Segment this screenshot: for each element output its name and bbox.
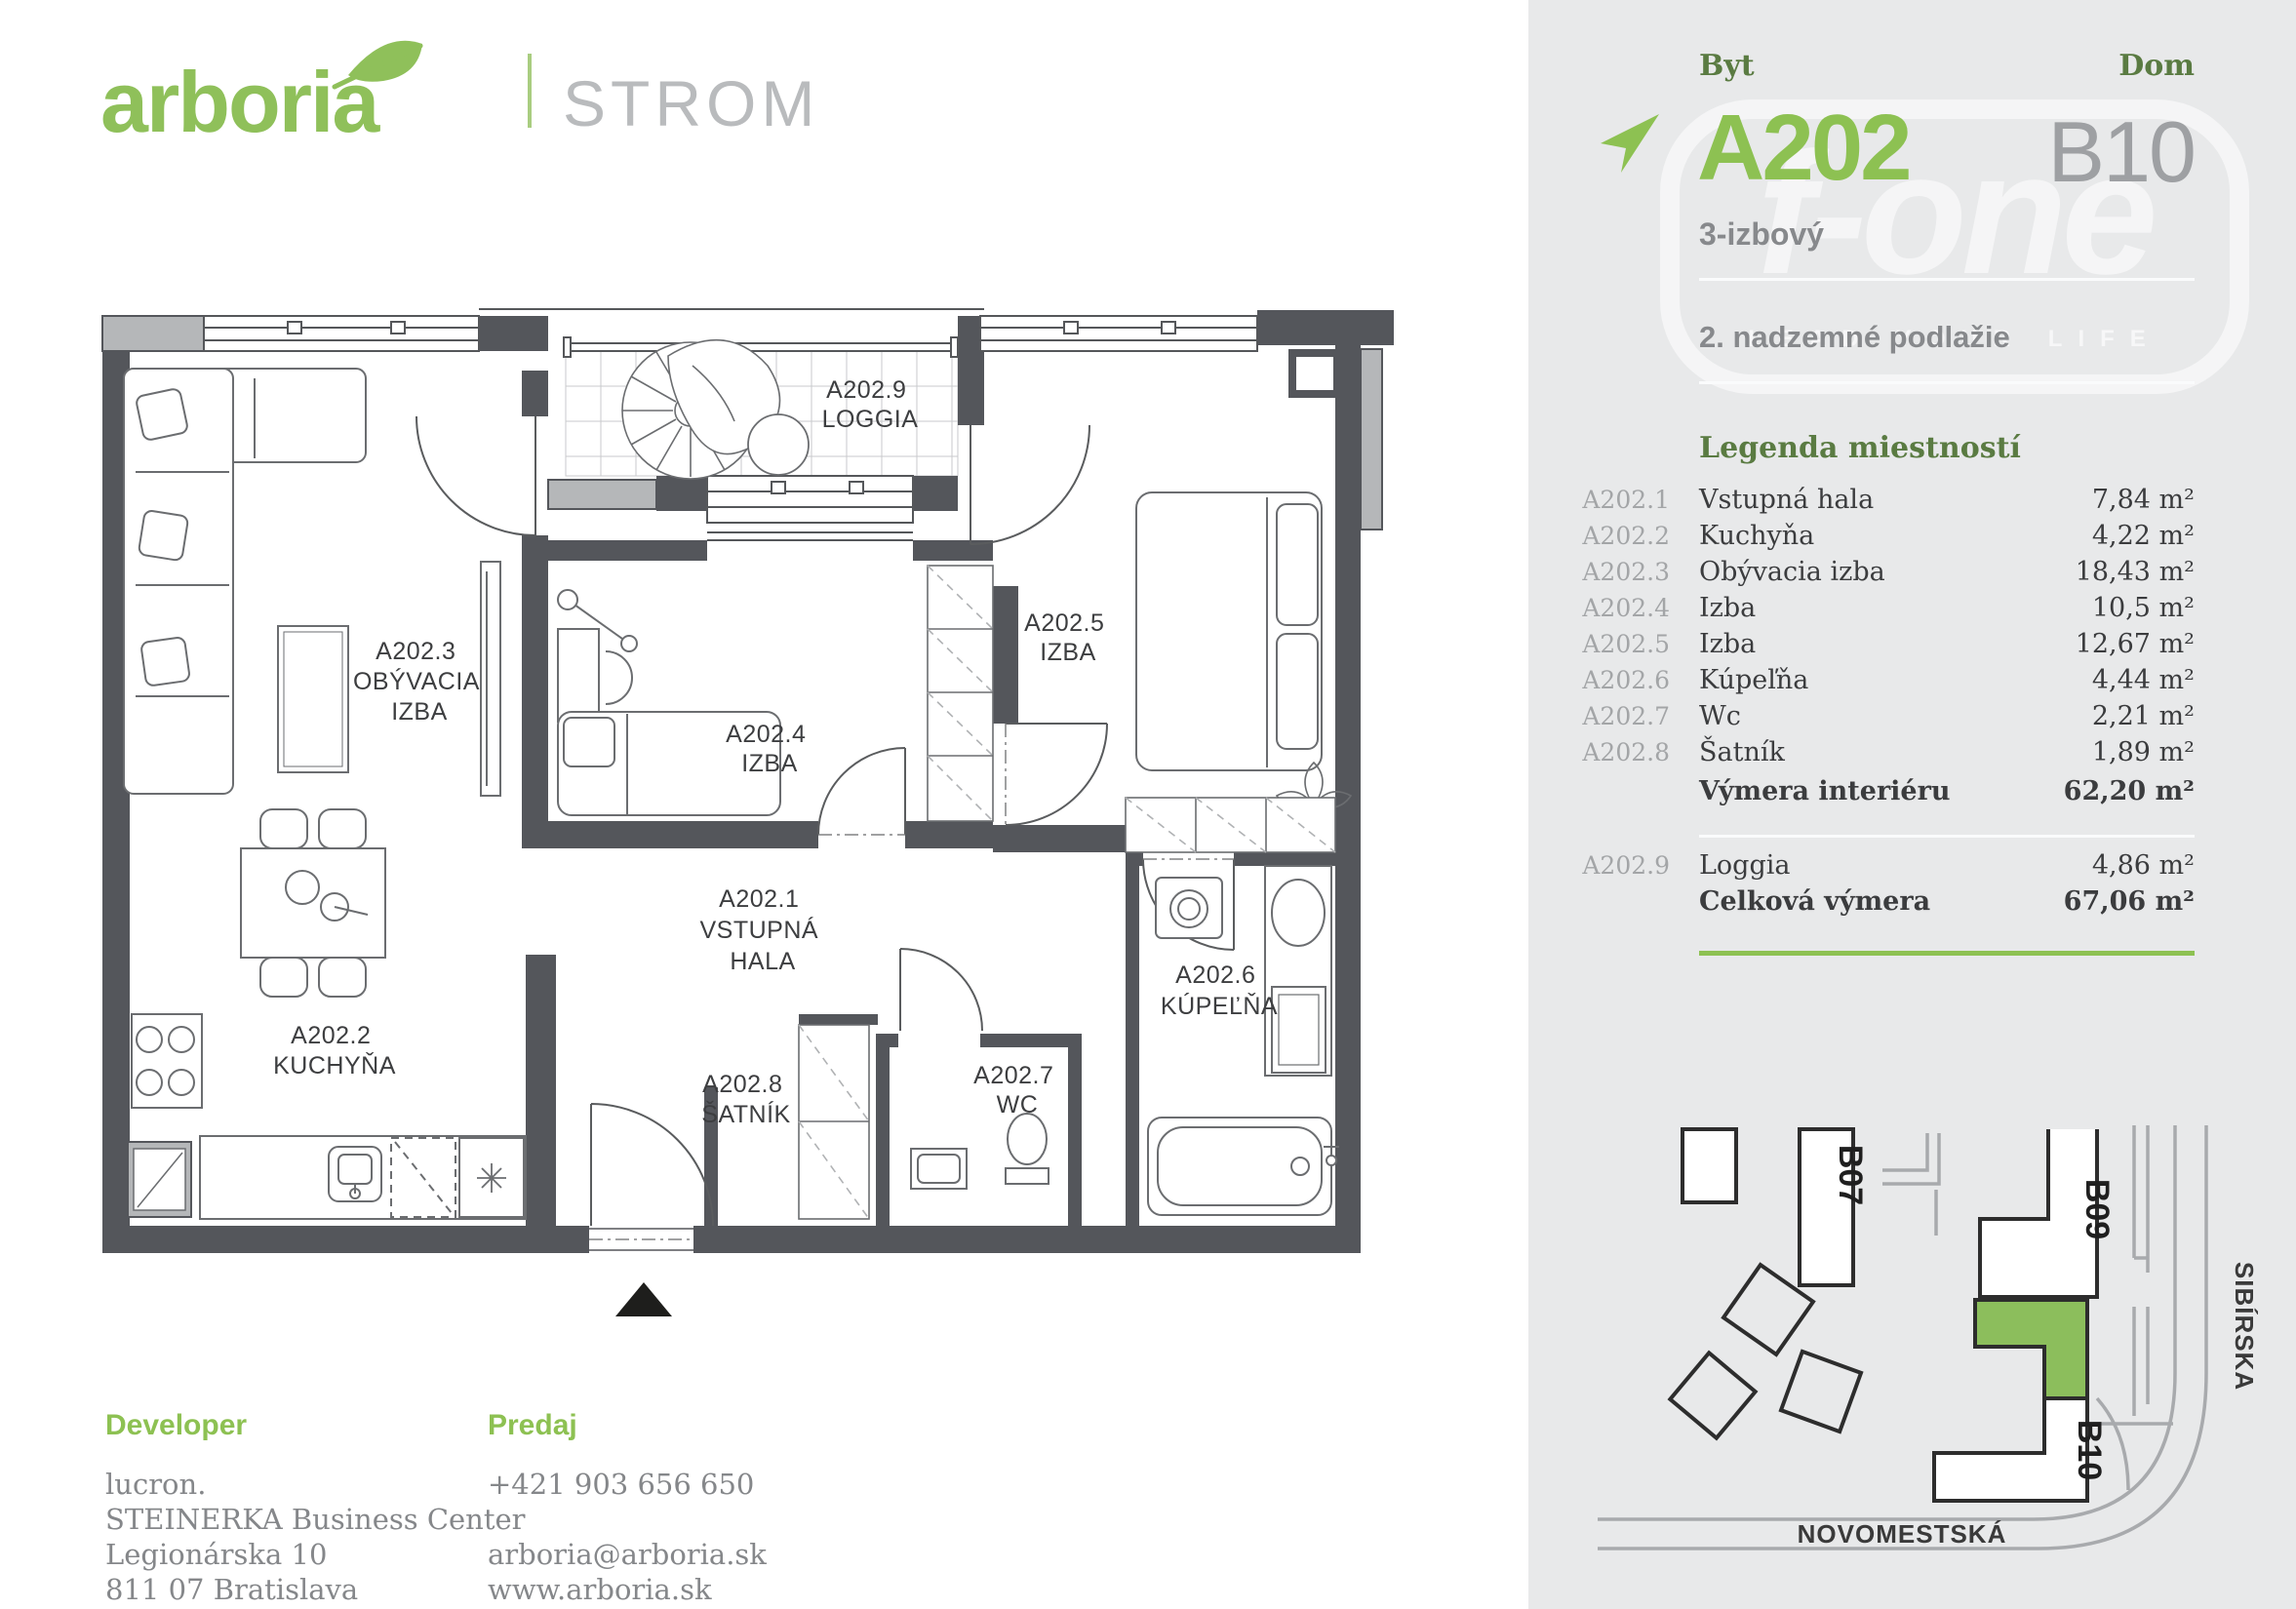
developer-line: STEINERKA Business Center	[105, 1503, 526, 1536]
legend-title: Legenda miestností	[1699, 431, 2021, 465]
vanity	[1272, 987, 1326, 1073]
green-divider	[1699, 951, 2195, 956]
room-area: 2,21 m²	[2092, 701, 2195, 731]
room-code: A202.7	[1567, 702, 1670, 730]
window-izba4-loggia	[707, 476, 913, 540]
cooktop	[132, 1014, 202, 1108]
developer-line: lucron.	[105, 1468, 206, 1501]
dom-label: Dom	[2118, 49, 2195, 83]
bed-double	[1136, 492, 1322, 770]
room-area: 4,86 m²	[2092, 850, 2195, 881]
room-code: A202.8	[1567, 738, 1670, 766]
legend-row: A202.7 Wc 2,21 m²	[1567, 701, 2195, 737]
total-row: Celková výmera 67,06 m²	[1567, 886, 2195, 922]
sales-heading: Predaj	[488, 1409, 577, 1442]
coffee-table	[278, 626, 348, 772]
window-living	[204, 316, 479, 351]
building-b10	[1934, 1398, 2087, 1501]
legend-row: A202.4 Izba 10,5 m²	[1567, 593, 2195, 629]
room-label-hala: A202.1 VSTUPNÁ HALA	[699, 885, 825, 975]
room-area: 18,43 m²	[2076, 557, 2195, 587]
apartment-id: A202	[1697, 101, 1910, 195]
legend-row: A202.6 Kúpeľňa 4,44 m²	[1567, 665, 2195, 701]
developer-heading: Developer	[105, 1409, 247, 1442]
building-b10-highlight[interactable]	[1975, 1300, 2087, 1398]
room-name: Izba	[1699, 629, 1756, 659]
wardrobe-izba4	[928, 566, 993, 821]
room-name: Loggia	[1699, 850, 1791, 881]
toilet	[1006, 1114, 1049, 1184]
room-code: A202.6	[1567, 666, 1670, 694]
room-code: A202.1	[1567, 486, 1670, 514]
room-label-obyvacia: A202.3 OBÝVACIA IZBA	[353, 638, 486, 726]
header-logo: arboria STROMOVÁ	[93, 24, 814, 161]
room-label-kuchyna: A202.2 KUCHYŇA	[273, 1022, 396, 1079]
room-area: 12,67 m²	[2076, 629, 2195, 659]
building-unlabeled	[1682, 1129, 1736, 1202]
bathtub	[1148, 1118, 1339, 1215]
interior-total-label: Výmera interiéru	[1699, 776, 1950, 806]
street-novomestska-label: NOVOMESTSKÁ	[1798, 1519, 2007, 1549]
total-value: 67,06 m²	[2064, 886, 2195, 917]
wardrobe-satnik	[799, 1025, 869, 1219]
room-code: A202.5	[1567, 630, 1670, 658]
bath-sink	[1265, 866, 1331, 1076]
window-bedroom	[980, 316, 1257, 351]
floor-plan: A202.3 OBÝVACIA IZBA A202.9 LOGGIA A202.…	[83, 263, 1409, 1355]
developer-line: Legionárska 10	[105, 1538, 327, 1571]
info-sidebar: f-one LEAD YOUR LIFE Byt Dom A202 B10 3-…	[1528, 0, 2296, 1609]
room-name: Wc	[1699, 701, 1741, 731]
room-code: A202.4	[1567, 594, 1670, 622]
building-b09-label: B09	[2078, 1179, 2116, 1239]
legend-row: A202.1 Vstupná hala 7,84 m²	[1567, 485, 2195, 521]
legend-row: A202.3 Obývacia izba 18,43 m²	[1567, 557, 2195, 593]
floor-label: 2. nadzemné podlažie	[1699, 320, 2010, 355]
room-code: A202.9	[1567, 851, 1670, 880]
room-code: A202.2	[1567, 522, 1670, 550]
apartment-type: 3-izbový	[1699, 216, 1824, 253]
room-label-wc: A202.7 WC	[973, 1062, 1061, 1118]
room-code: A202.3	[1567, 558, 1670, 586]
dining-set	[241, 809, 385, 997]
total-label: Celková výmera	[1699, 886, 1930, 917]
room-name: Šatník	[1699, 737, 1785, 767]
sales-phone[interactable]: +421 903 656 650	[488, 1468, 754, 1501]
washing-machine	[1156, 878, 1222, 938]
divider	[1699, 835, 2195, 838]
loggia-row: A202.9 Loggia 4,86 m²	[1567, 850, 2195, 886]
site-map: B07 B09 B10 SIBÍRSKA NOVOMESTSKÁ	[1590, 1121, 2296, 1604]
interior-total-value: 62,20 m²	[2064, 776, 2195, 806]
room-name: Kúpeľňa	[1699, 665, 1808, 695]
room-area: 10,5 m²	[2092, 593, 2195, 623]
divider	[1699, 381, 2195, 384]
loggia-table	[748, 414, 809, 475]
page: { "header": { "logo_text": "arboria", "p…	[0, 0, 2296, 1609]
divider	[1699, 278, 2195, 281]
room-area: 1,89 m²	[2092, 737, 2195, 767]
wall-notch	[1296, 357, 1333, 390]
room-name: Kuchyňa	[1699, 521, 1814, 551]
sales-email[interactable]: arboria@arboria.sk	[488, 1538, 767, 1571]
room-area: 4,44 m²	[2092, 665, 2195, 695]
sales-web[interactable]: www.arboria.sk	[488, 1573, 712, 1606]
room-name: Izba	[1699, 593, 1756, 623]
closet-bedroom	[1126, 798, 1335, 852]
street-sibirska-label: SIBÍRSKA	[2230, 1262, 2259, 1391]
building-b10-label: B10	[2071, 1420, 2108, 1480]
kitchen-counter	[200, 1136, 526, 1219]
room-area: 4,22 m²	[2092, 521, 2195, 551]
interior-total-row: Výmera interiéru 62,20 m²	[1567, 776, 2195, 812]
entrance-arrow	[615, 1282, 672, 1316]
project-name: STROMOVÁ	[563, 67, 814, 139]
legend-row: A202.8 Šatník 1,89 m²	[1567, 737, 2195, 773]
building-id: B10	[2047, 109, 2195, 195]
room-label-kupelna: A202.6 KÚPEĽŇA	[1161, 961, 1278, 1020]
room-area: 7,84 m²	[2092, 485, 2195, 515]
room-name: Vstupná hala	[1699, 485, 1874, 515]
logo-wordmark: arboria	[100, 54, 380, 150]
legend-row: A202.5 Izba 12,67 m²	[1567, 629, 2195, 665]
desk-izba4	[558, 590, 637, 722]
building-b07-label: B07	[1832, 1145, 1869, 1205]
legend-row: A202.2 Kuchyňa 4,22 m²	[1567, 521, 2195, 557]
wc-sink	[911, 1149, 967, 1189]
location-arrow-icon	[1599, 112, 1663, 175]
map-other-buildings	[1670, 1265, 1861, 1438]
byt-label: Byt	[1699, 49, 1755, 83]
room-label-izba5: A202.5 IZBA	[1024, 609, 1112, 666]
developer-line: 811 07 Bratislava	[105, 1573, 358, 1606]
room-name: Obývacia izba	[1699, 557, 1885, 587]
logo-separator	[528, 54, 532, 128]
